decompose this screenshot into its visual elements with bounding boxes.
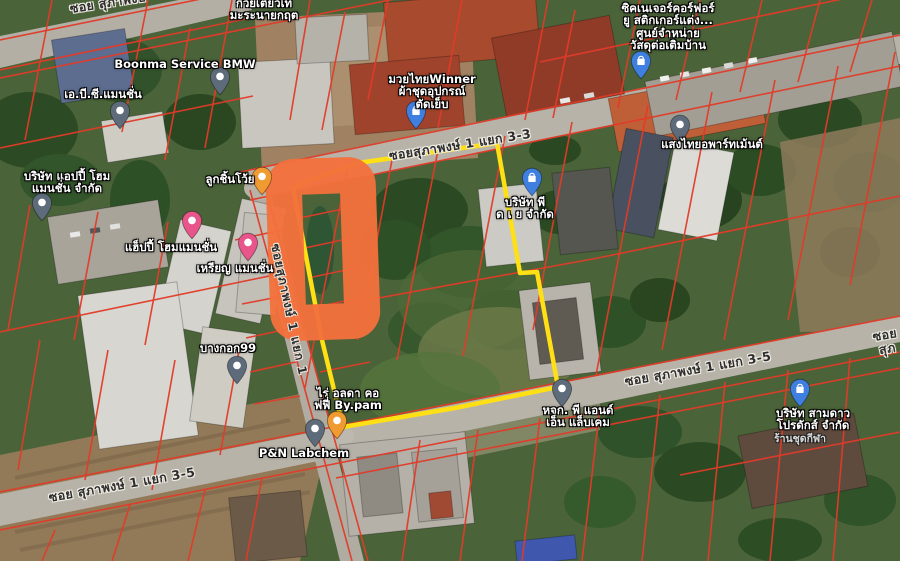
poi-pin-happy-home-co[interactable] [31,192,53,222]
poi-label-saengthai[interactable]: แสงไทยอพาร์ทเม้นต์ [661,138,763,150]
poi-label-samdao-sub[interactable]: ร้านชุดกีฬา [774,434,826,445]
poi-label-samdao[interactable]: บริษัท สามดาว โปรดักส์ จำกัด [776,407,850,432]
poi-label-rian-mansion[interactable]: เหรียญ แมนชั่น [197,262,274,274]
poi-label-signature[interactable]: ซิคเนเจอร์คอร์ฟอร์ ยู สติกเกอร์แต่ง... ศ… [621,2,714,52]
poi-pin-abc-mansion[interactable] [109,100,131,130]
poi-pin-pn-labchem[interactable] [304,418,326,448]
poi-label-rai-coffee[interactable]: ไร่ อลดา คอ ฟฟี่ By.pam [314,387,382,412]
poi-label-p-company[interactable]: บริษัท พี ด เ ย จำกัด [496,196,554,221]
poi-pin-p-company[interactable] [521,167,543,197]
poi-label-pn-ltd[interactable]: หจก. พี แอนด์ เอ็น แล็บเคม [543,404,614,429]
poi-pin-rai-coffee[interactable] [326,410,348,440]
road-label-yaek-3-5-clipped: ซอย สุภ [872,326,900,357]
poi-label-happy-home-co[interactable]: บริษัท แอปปี้ โฮม แมนชั่น จำกัด [24,170,110,195]
poi-label-pn-labchem[interactable]: P&N Labchem [259,447,349,459]
poi-label-happy-home-mansion[interactable]: แฮ็ปปี้ โฮมแมนชั่น [125,241,217,253]
poi-pin-signature[interactable] [630,50,652,80]
poi-pin-rian-mansion[interactable] [237,232,259,262]
poi-label-lukchin-woi[interactable]: ลูกชิ้นโว้ย [205,173,254,185]
map-canvas[interactable]: ซอย สุภาพงษ์ ซอยสุภาพงษ์ 1 แยก 3-3 ซอยสุ… [0,0,900,561]
poi-label-boonma[interactable]: Boonma Service BMW [114,58,255,70]
poi-pin-happy-home-mansion[interactable] [181,210,203,240]
poi-pin-samdao[interactable] [789,378,811,408]
poi-label-bangkok99[interactable]: บางกอก99 [200,342,256,354]
poi-pin-bangkok99[interactable] [226,355,248,385]
poi-label-abc-mansion[interactable]: เอ.บี.ซี.แมนชั่น [64,88,142,100]
poi-label-kuaytiao[interactable]: ก๋วยเตี๋ยวเท มะระนายกฤต [230,0,299,22]
poi-label-muaythai-winner[interactable]: มวยไทยWinner ผ้าชุดอุปกรณ์ ตัดเย็บ [388,73,475,110]
